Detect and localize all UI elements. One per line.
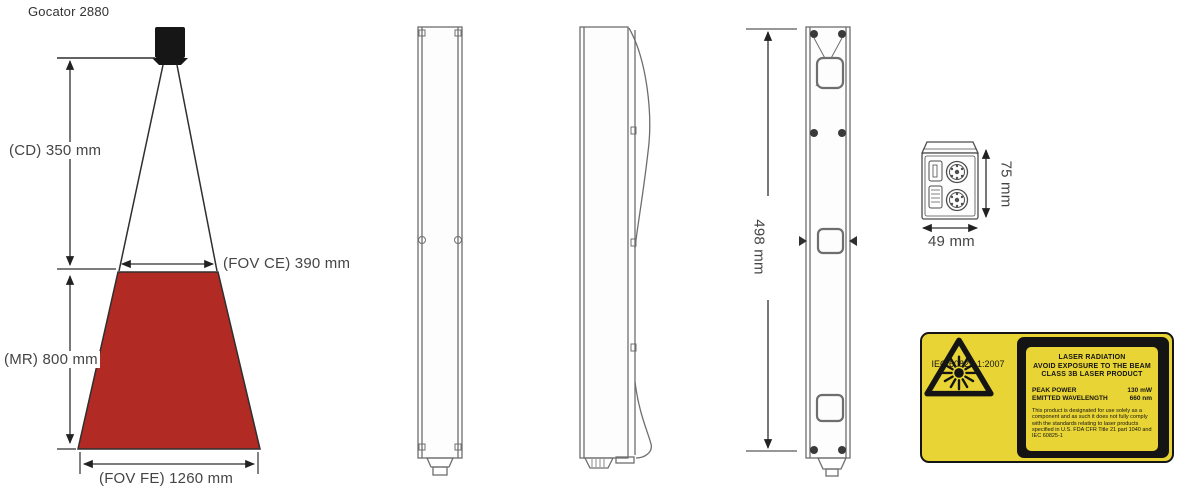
laser-warning-icon: [922, 334, 996, 400]
fov-ce-dimension-label: (FOV CE) 390 mm: [221, 255, 352, 272]
mr-dimension-label: (MR) 800 mm: [2, 351, 100, 368]
sensor-head-icon: [152, 27, 188, 65]
laser-label-text-panel: LASER RADIATION AVOID EXPOSURE TO THE BE…: [1017, 337, 1169, 458]
fov-diagram: [57, 27, 260, 474]
cd-dimension-label: (CD) 350 mm: [7, 142, 103, 159]
cutout-middle: [818, 229, 843, 253]
circular-connector-bottom: [947, 190, 968, 211]
page-title: Gocator 2880: [28, 4, 109, 19]
bottom-connector: [427, 458, 453, 475]
peak-power-value: 130 mW: [1127, 387, 1152, 395]
laser-spec-table: PEAK POWER 130 mW EMITTED WAVELENGTH 660…: [1032, 387, 1152, 403]
fov-fe-dimension-label: (FOV FE) 1260 mm: [97, 470, 235, 487]
cable-cover-bulge: [629, 28, 650, 248]
laser-disclaimer-text: This product is designated for use solel…: [1032, 408, 1152, 440]
wavelength-row: EMITTED WAVELENGTH 660 nm: [1032, 395, 1152, 403]
beam-leg-right: [177, 65, 217, 271]
wavelength-value: 660 nm: [1130, 395, 1152, 403]
measurement-range-zone: [78, 272, 260, 449]
circular-connector-top: [947, 162, 968, 183]
avoid-exposure-line: AVOID EXPOSURE TO THE BEAM: [1032, 363, 1152, 372]
cutout-bottom: [817, 395, 843, 421]
bottom-connector: [818, 458, 846, 476]
top-lid: [922, 142, 978, 153]
laser-class-line: CLASS 3B LASER PRODUCT: [1032, 371, 1152, 380]
connector-face-view: [922, 142, 986, 228]
front-view: [418, 27, 462, 475]
depth-dimension-label: 75 mm: [998, 159, 1015, 210]
peak-power-row: PEAK POWER 130 mW: [1032, 387, 1152, 395]
side-view: [580, 27, 651, 468]
cutout-top: [817, 58, 843, 88]
wavelength-label: EMITTED WAVELENGTH: [1032, 395, 1108, 403]
height-dimension-label: 498 mm: [751, 217, 768, 276]
diagram-canvas: Gocator 2880 (CD) 350 mm (FOV CE) 390 mm…: [0, 0, 1179, 494]
laser-radiation-line: LASER RADIATION: [1032, 354, 1152, 363]
width-dimension-label: 49 mm: [926, 233, 977, 250]
beam-leg-left: [119, 65, 163, 271]
laser-warning-symbol-panel: IEC 60825-1:2007: [922, 334, 1014, 461]
cable-cover-flare: [635, 382, 651, 458]
peak-power-label: PEAK POWER: [1032, 387, 1076, 395]
laser-warning-label: IEC 60825-1:2007 LASER RADIATION AVOID E…: [920, 332, 1174, 463]
